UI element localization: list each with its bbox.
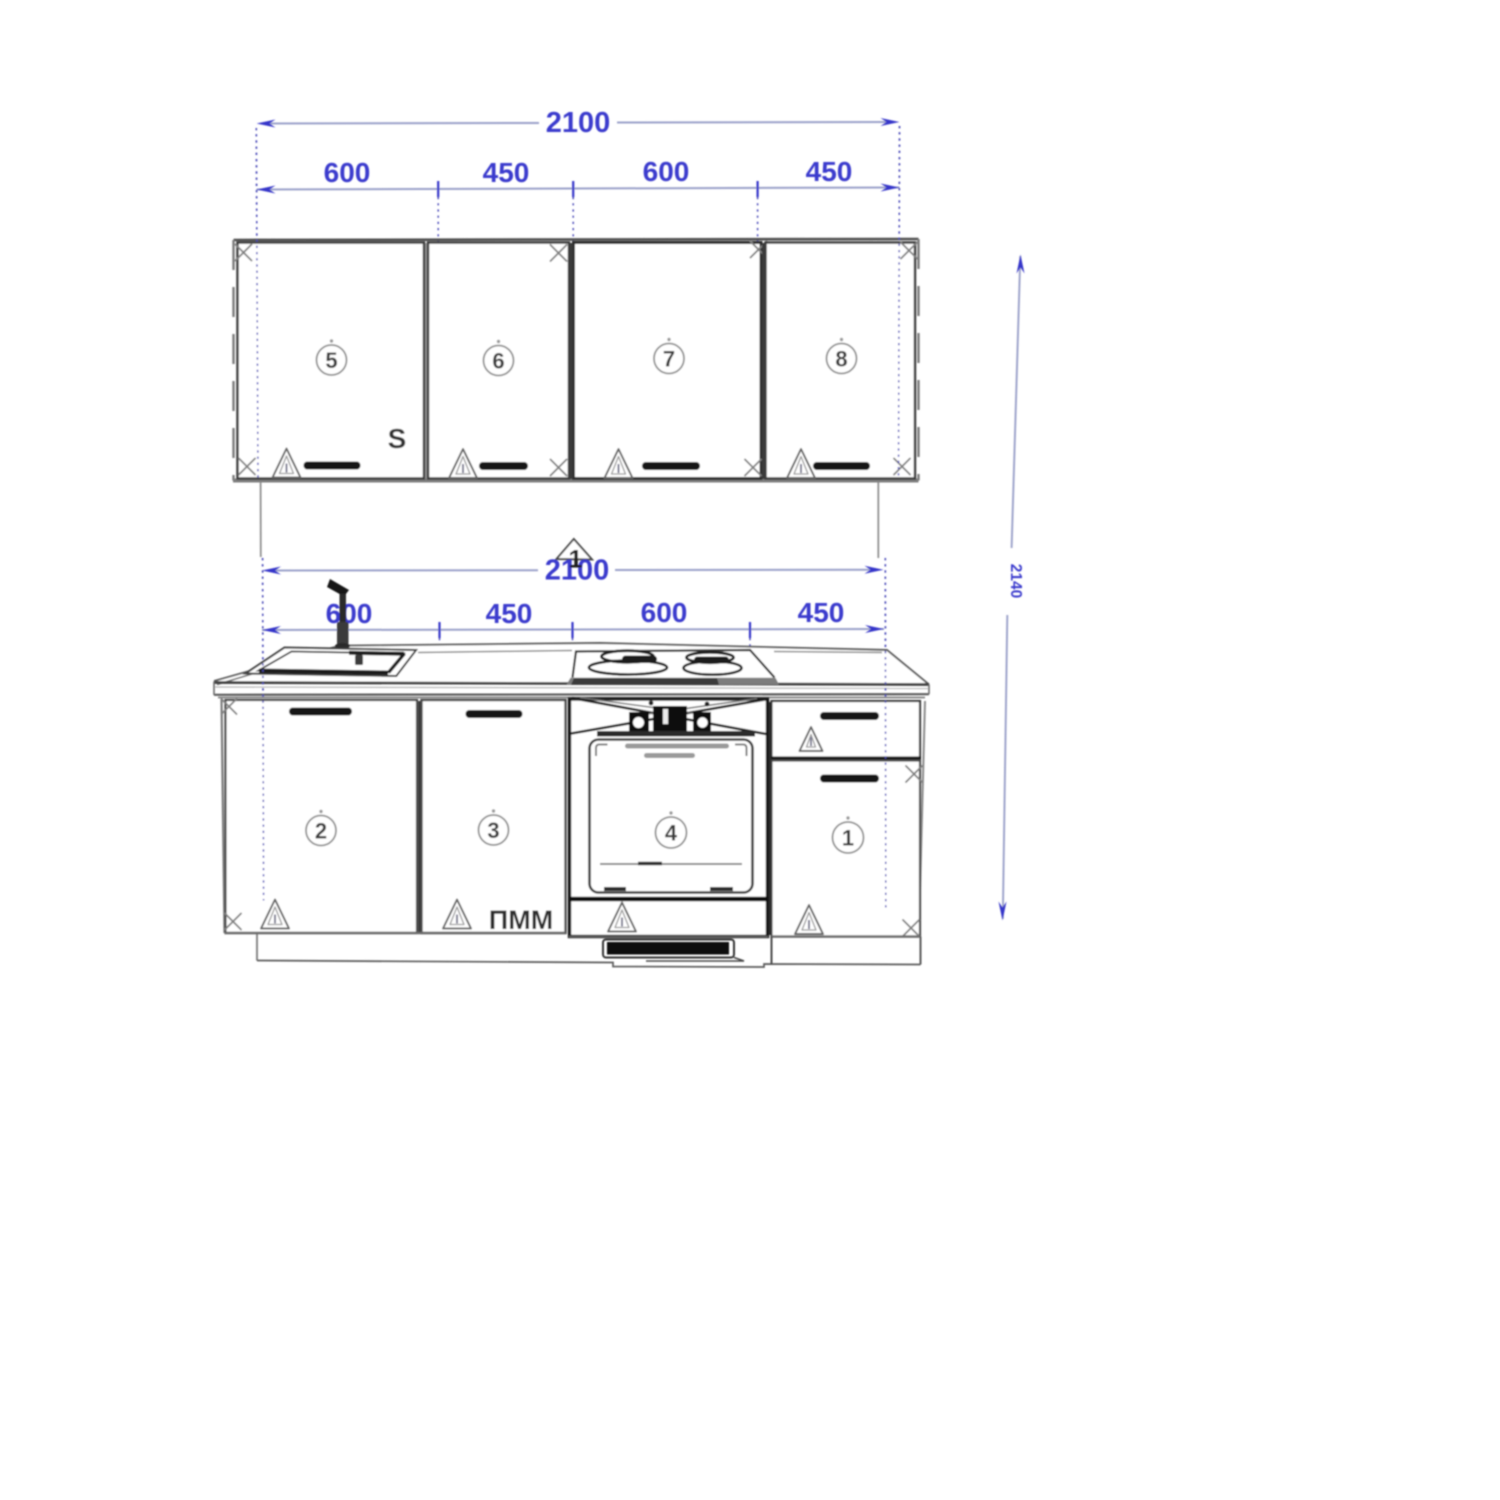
svg-text:3: 3 bbox=[487, 818, 499, 843]
svg-text:600: 600 bbox=[324, 157, 371, 188]
svg-text:2100: 2100 bbox=[546, 107, 611, 139]
svg-text:600: 600 bbox=[326, 598, 373, 629]
svg-text:5: 5 bbox=[325, 348, 337, 373]
svg-text:ПММ: ПММ bbox=[489, 905, 553, 935]
svg-text:450: 450 bbox=[806, 156, 853, 187]
svg-text:600: 600 bbox=[641, 597, 688, 628]
svg-text:1: 1 bbox=[569, 546, 583, 574]
svg-text:1: 1 bbox=[842, 825, 854, 850]
svg-text:2140: 2140 bbox=[1007, 564, 1024, 598]
svg-text:7: 7 bbox=[663, 346, 675, 371]
svg-text:450: 450 bbox=[798, 597, 845, 628]
svg-text:450: 450 bbox=[483, 157, 530, 188]
svg-text:6: 6 bbox=[492, 348, 504, 373]
svg-text:4: 4 bbox=[665, 820, 678, 845]
svg-text:450: 450 bbox=[486, 598, 533, 629]
svg-text:600: 600 bbox=[643, 156, 690, 187]
svg-text:2: 2 bbox=[315, 818, 327, 843]
svg-text:8: 8 bbox=[835, 346, 847, 371]
svg-text:S: S bbox=[388, 423, 407, 454]
